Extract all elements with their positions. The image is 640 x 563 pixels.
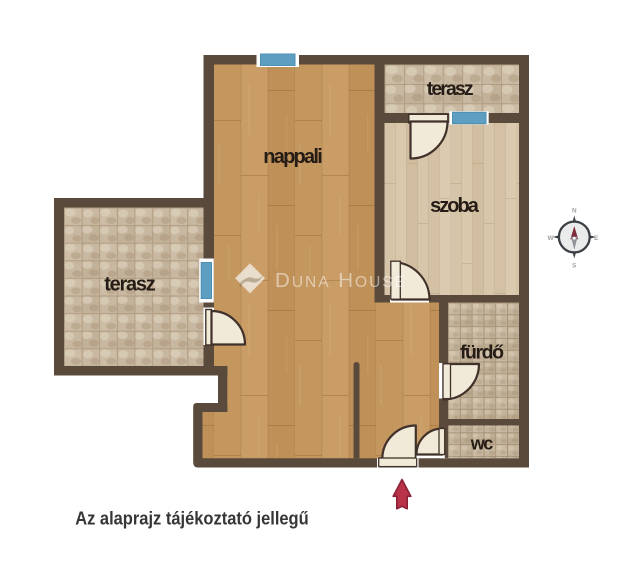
svg-text:nappali: nappali [263,146,323,168]
svg-text:Az alaprajz tájékoztató jelleg: Az alaprajz tájékoztató jellegű [75,508,309,529]
svg-text:terasz: terasz [427,78,474,100]
svg-text:W: W [547,235,554,242]
svg-text:terasz: terasz [104,274,155,296]
svg-text:N: N [572,207,577,214]
svg-text:wc: wc [470,433,494,453]
svg-text:szoba: szoba [430,195,480,217]
svg-text:fürdő: fürdő [460,341,504,363]
svg-text:S: S [572,263,577,270]
svg-text:E: E [594,235,599,242]
